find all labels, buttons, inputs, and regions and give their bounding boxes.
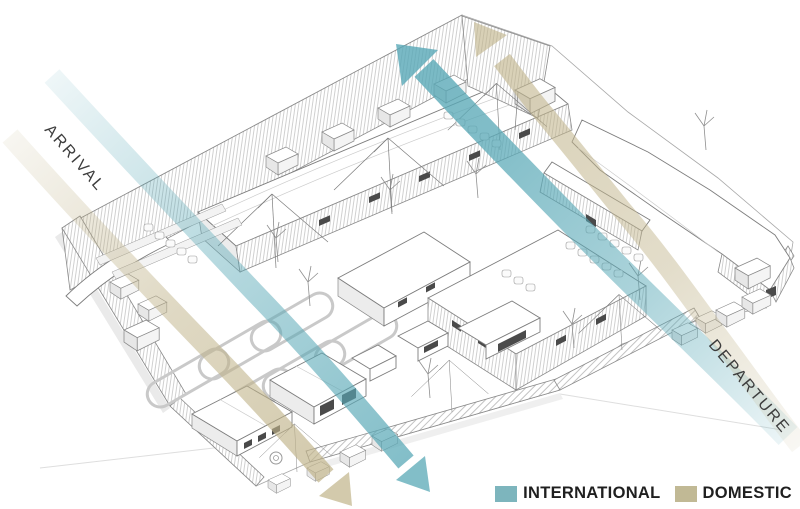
departure-label: DEPARTURE <box>705 337 793 438</box>
domestic-swatch <box>675 486 697 502</box>
legend-item-domestic: DOMESTIC <box>675 484 792 503</box>
domestic-label: DOMESTIC <box>703 484 792 503</box>
terminal-flow-diagram: ARRIVAL DEPARTURE INTERNATIONAL DOMESTIC <box>0 0 800 509</box>
legend-item-international: INTERNATIONAL <box>495 484 660 503</box>
legend: INTERNATIONAL DOMESTIC <box>495 484 792 503</box>
international-label: INTERNATIONAL <box>523 484 660 503</box>
axonometric-drawing: ARRIVAL DEPARTURE <box>0 0 800 509</box>
international-swatch <box>495 486 517 502</box>
